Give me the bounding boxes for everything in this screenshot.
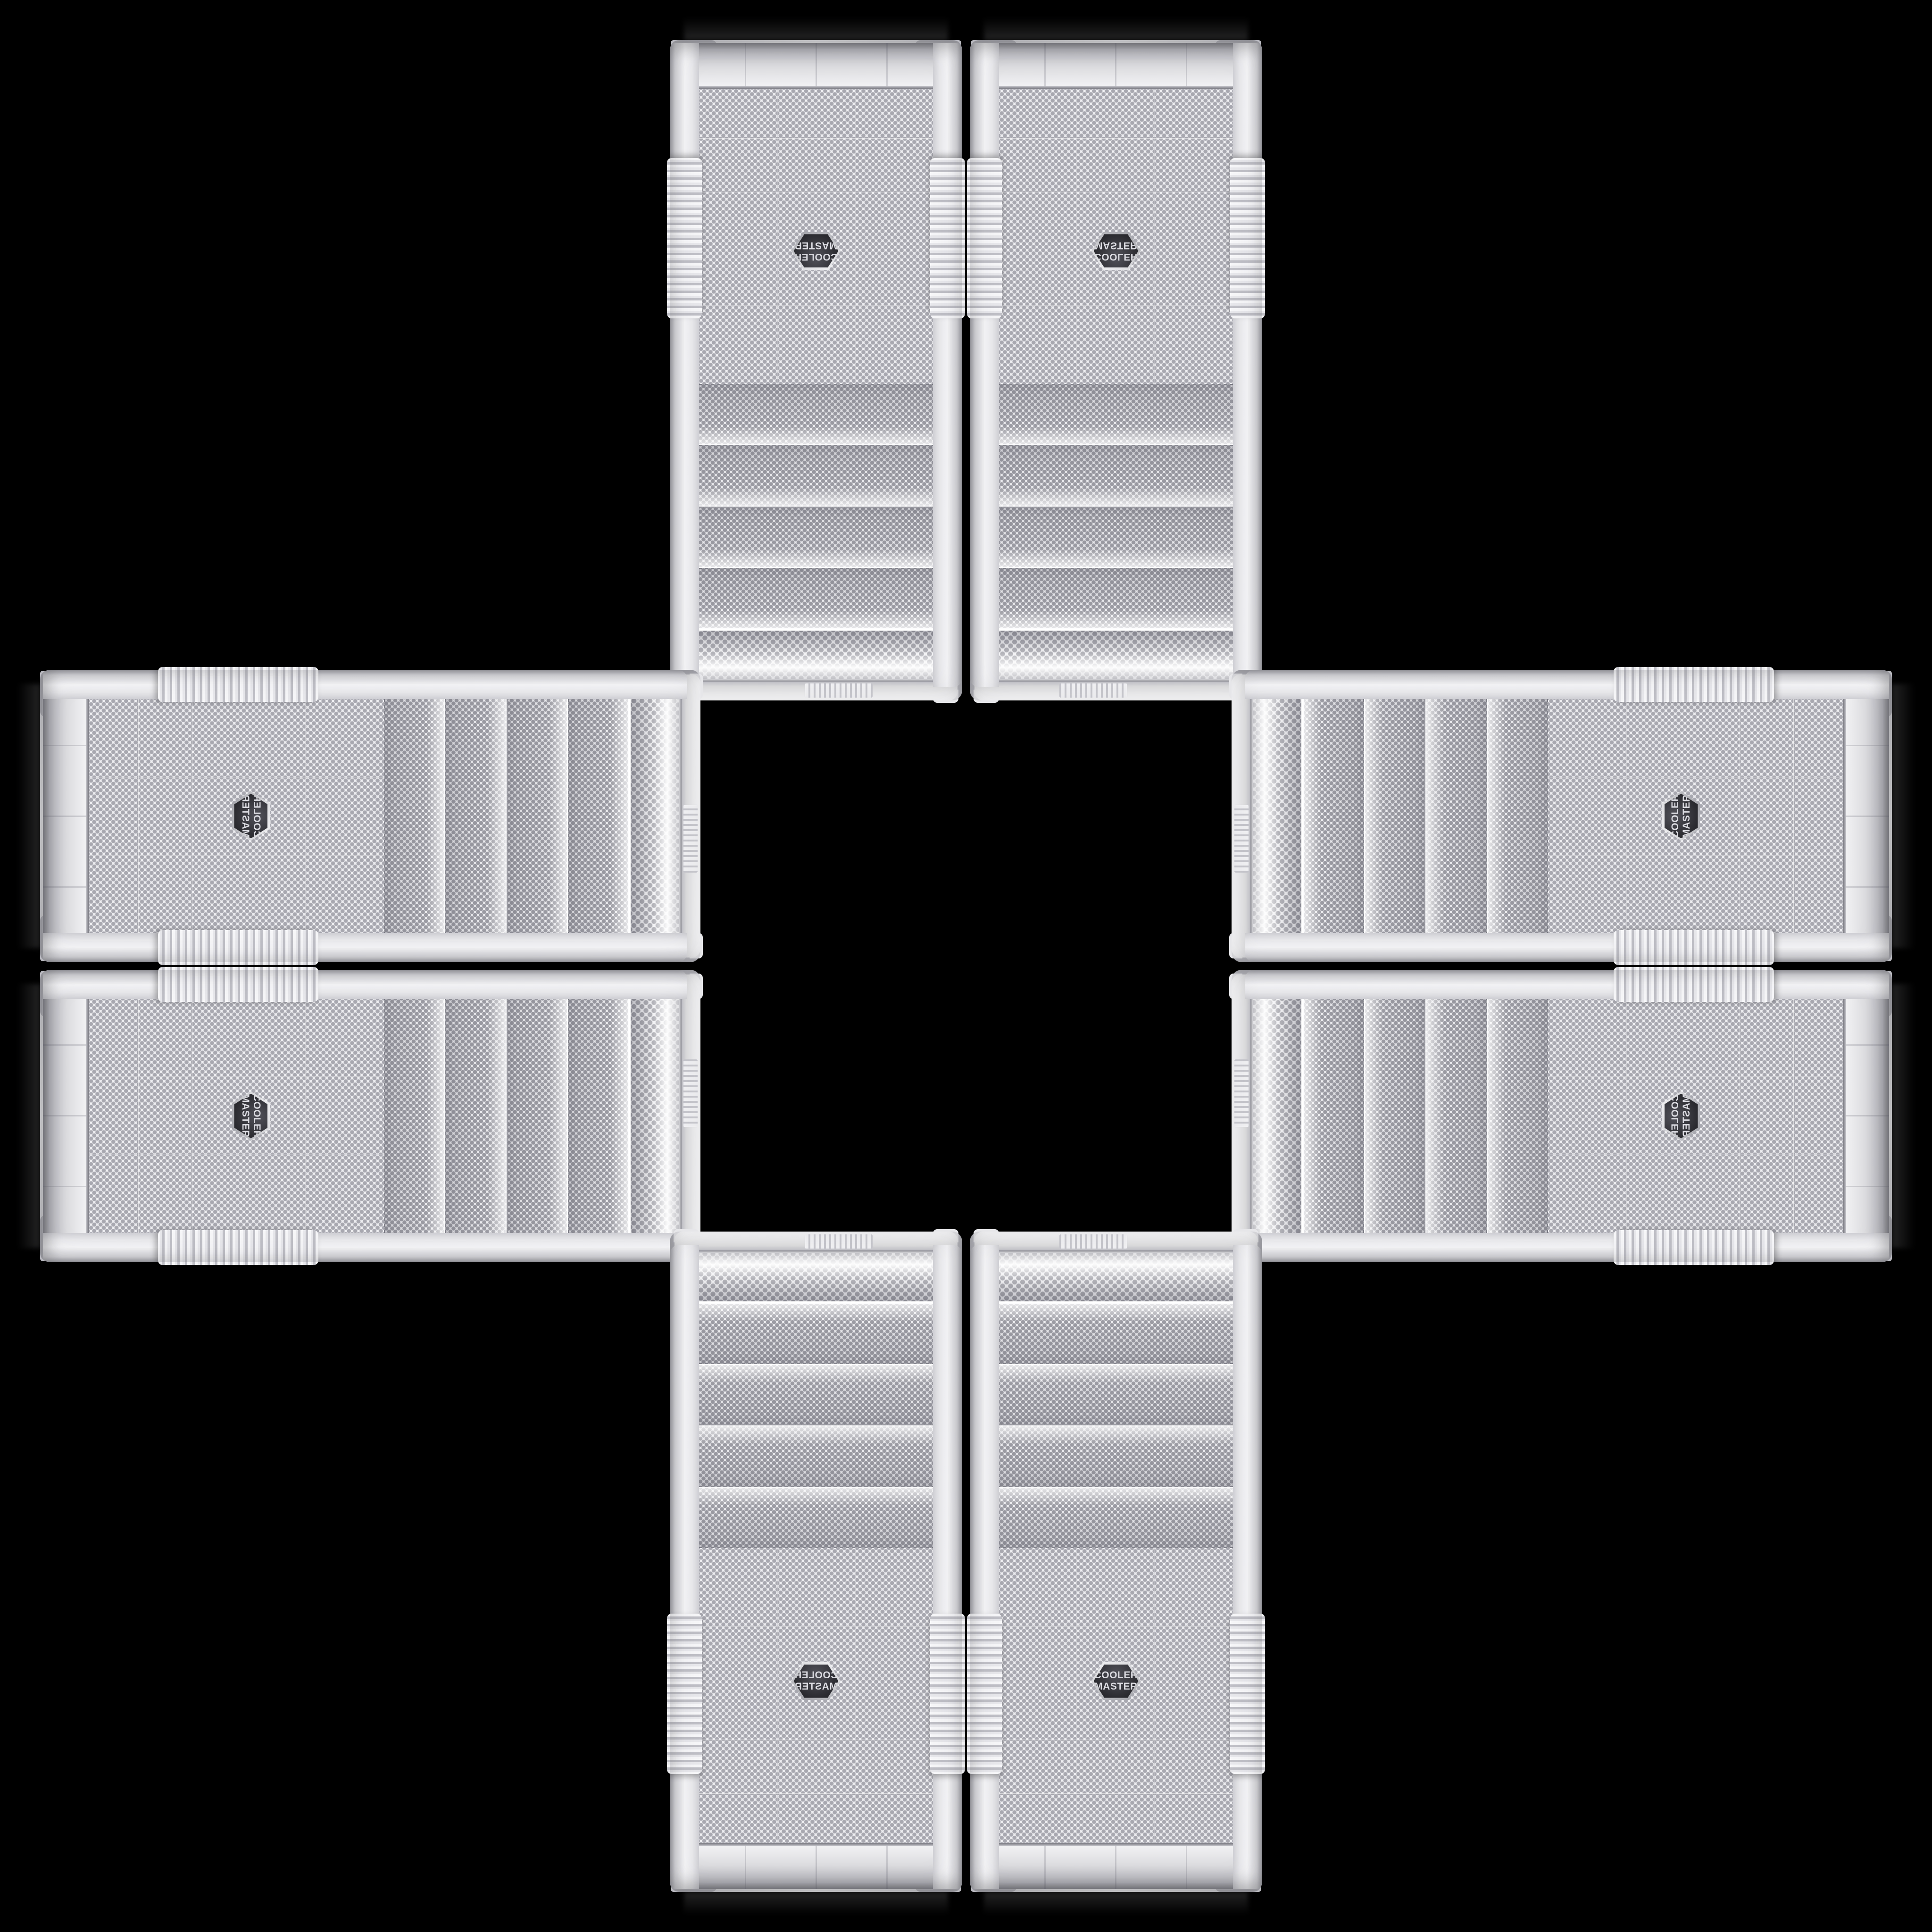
base-shadow-lip [1843,674,1846,958]
side-grip-ribs-right [1230,1614,1265,1774]
side-grip-ribs-right [1614,1230,1774,1265]
front-mesh-panel: COOLER MASTER [997,1242,1235,1847]
drive-bay-cover [446,999,507,1233]
top-vent-ribs [683,1059,698,1127]
drive-bay-cover [699,569,933,629]
top-bezel-cap [1232,675,1251,958]
side-rail-left [933,1245,962,1889]
mesh-seam [1154,85,1155,384]
mesh-seam [1076,1548,1077,1847]
side-rail-right [1233,43,1262,687]
cooler-master-logo-badge: COOLER MASTER [1662,1091,1700,1141]
base-shadow-lip [86,974,89,1258]
chrome-trim-top [1250,994,1253,1238]
mesh-seam [699,1626,933,1627]
front-mesh-panel: COOLER MASTER [85,697,690,935]
drive-bay-cover [1487,999,1547,1233]
drive-bay-cover [1487,699,1547,933]
chrome-trim-top [679,694,682,938]
drive-bay-covers [999,384,1233,629]
floor-reflection [1892,984,1922,1248]
mesh-seam [85,1076,384,1077]
top-vent-ribs [805,683,873,698]
drive-bay-cover [1303,999,1363,1233]
base-shadow-lip [86,674,89,958]
drive-bay-covers [384,999,629,1233]
pc-case-bottom-left: COOLER MASTER [670,1232,962,1892]
mesh-seam [855,85,856,384]
cooler-master-logo-badge: COOLER MASTER [791,1662,841,1700]
badge-text-line2: MASTER [240,794,251,838]
drive-bay-cover [508,699,568,933]
pc-case-top-right: COOLER MASTER [970,40,1262,700]
case-base [974,43,1258,86]
side-grip-ribs-left [930,158,965,318]
mesh-seam [191,999,192,1233]
drive-bay-cover [699,385,933,445]
pc-case-right-bottom: COOLER MASTER [1232,970,1892,1262]
mesh-seam [1548,1076,1847,1077]
drive-bay-cover [569,999,629,1233]
top-bezel-cap [675,1232,958,1251]
side-rail-left [1245,970,1889,999]
mesh-seam [1793,999,1795,1233]
badge-text-line1: COOLER [1670,1094,1681,1138]
floor-reflection [1892,684,1922,948]
side-rail-right [43,670,687,699]
mesh-seam [1548,855,1847,856]
top-vent-ribs [1234,1059,1249,1127]
top-vent-ribs [1059,1234,1127,1249]
top-bezel-cap [974,1232,1257,1251]
mesh-seam [1793,699,1795,933]
side-rail-left [43,933,687,962]
drive-bay-cover [1364,699,1424,933]
side-grip-ribs-left [158,930,318,965]
lower-mesh-intake: COOLER MASTER [1548,699,1847,933]
case-base [1846,974,1889,1258]
top-vent-ribs [805,1234,873,1249]
side-grip-ribs-right [1614,667,1774,702]
badge-text-line2: MASTER [1681,794,1692,838]
cooler-master-logo-icon: COOLER MASTER [234,794,268,839]
drive-bay-cover [699,508,933,568]
side-grip-ribs-right [158,667,318,702]
top-bezel-cap [675,681,958,700]
mesh-seam [1076,85,1077,384]
pc-case-top-left: COOLER MASTER [670,40,962,700]
mesh-seam [699,305,933,306]
drive-bay-covers [699,384,933,629]
drive-bay-cover [699,1425,933,1486]
case-base [674,1846,958,1889]
chrome-trim-top [694,1250,938,1253]
mesh-seam [1626,999,1627,1233]
badge-text-line1: COOLER [251,794,262,838]
lower-mesh-intake: COOLER MASTER [999,85,1233,384]
side-rail-right [43,1233,687,1262]
black-background-canvas: COOLER MASTER [0,0,1932,1932]
lower-mesh-intake: COOLER MASTER [699,1548,933,1847]
badge-text-line1: COOLER [794,251,838,262]
badge-text-line2: MASTER [1094,1681,1138,1692]
chrome-trim-top [994,1250,1238,1253]
mesh-seam [137,999,139,1233]
floor-reflection [984,10,1248,40]
lower-mesh-intake: COOLER MASTER [1548,999,1847,1233]
drive-bay-cover [999,1303,1233,1363]
side-grip-ribs-left [930,1614,965,1774]
cooler-master-logo-badge: COOLER MASTER [232,1091,270,1141]
cooler-master-logo-badge: COOLER MASTER [1091,1662,1141,1700]
lower-mesh-intake: COOLER MASTER [999,1548,1233,1847]
mesh-seam [305,999,306,1233]
floor-reflection [684,1892,948,1922]
mesh-seam [699,1740,933,1741]
mesh-seam [999,137,1233,139]
pc-case-left-top: COOLER MASTER [40,670,700,962]
top-vent-ribs [1234,805,1249,873]
cooler-master-logo-badge: COOLER MASTER [1662,791,1700,841]
cooler-master-logo-badge: COOLER MASTER [791,232,841,270]
drive-bay-cover [999,569,1233,629]
base-shadow-lip [674,1843,958,1846]
drive-bay-cover [508,999,568,1233]
floor-reflection [10,984,40,1248]
mesh-seam [1548,1154,1847,1155]
floor-reflection [984,1892,1248,1922]
drive-bay-cover [446,699,507,933]
side-grip-ribs-left [1614,967,1774,1002]
badge-text-line2: MASTER [794,1681,838,1692]
drive-bay-cover [569,699,629,933]
badge-text-line1: COOLER [1094,1670,1138,1681]
side-grip-ribs-left [967,158,1002,318]
chrome-trim-top [994,679,1238,682]
drive-bay-cover [1425,699,1486,933]
drive-bay-cover [999,1425,1233,1486]
lower-mesh-intake: COOLER MASTER [699,85,933,384]
top-bezel-cap [681,974,700,1257]
cooler-master-logo-badge: COOLER MASTER [232,791,270,841]
badge-text-line2: MASTER [1094,240,1138,251]
badge-text-line2: MASTER [240,1094,251,1138]
drive-bay-covers [384,699,629,933]
drive-bay-cover [699,1487,933,1547]
mesh-seam [137,699,139,933]
drive-bay-cover [385,999,445,1233]
side-rail-right [670,43,699,687]
cooler-master-logo-icon: COOLER MASTER [794,1665,839,1698]
mesh-seam [699,191,933,192]
case-base [43,674,86,958]
cooler-master-logo-icon: COOLER MASTER [1665,1094,1698,1139]
chrome-trim-top [679,994,682,1238]
front-mesh-panel: COOLER MASTER [697,85,935,690]
mesh-seam [1740,999,1741,1233]
mesh-seam [1626,699,1627,933]
side-grip-ribs-left [967,1614,1002,1774]
mesh-seam [999,305,1233,306]
chrome-trim-top [694,679,938,682]
lower-mesh-intake: COOLER MASTER [85,999,384,1233]
front-mesh-panel: COOLER MASTER [85,997,690,1235]
badge-text-line2: MASTER [1681,1094,1692,1138]
pc-case-bottom-right: COOLER MASTER [970,1232,1262,1892]
cooler-master-logo-icon: COOLER MASTER [1094,1665,1139,1698]
pc-case-right-top: COOLER MASTER [1232,670,1892,962]
mesh-seam [1154,1548,1155,1847]
side-rail-left [970,1245,999,1889]
base-shadow-lip [974,86,1258,89]
mesh-seam [1548,777,1847,778]
mesh-seam [85,1154,384,1155]
badge-text-line1: COOLER [251,1094,262,1138]
front-mesh-panel: COOLER MASTER [697,1242,935,1847]
mesh-seam [699,1793,933,1795]
top-bezel-cap [1232,974,1251,1257]
side-rail-right [1245,670,1889,699]
cooler-master-logo-icon: COOLER MASTER [1094,234,1139,268]
lower-mesh-intake: COOLER MASTER [85,699,384,933]
side-grip-ribs-right [667,1614,702,1774]
mesh-seam [999,1626,1233,1627]
case-base [974,1846,1258,1889]
drive-bay-covers [699,1303,933,1548]
mesh-seam [855,1548,856,1847]
side-grip-ribs-left [158,967,318,1002]
badge-text-line1: COOLER [794,1670,838,1681]
drive-bay-covers [1303,699,1548,933]
side-rail-left [43,970,687,999]
top-bezel-cap [681,675,700,958]
chrome-trim-top [1250,694,1253,938]
side-grip-ribs-left [1614,930,1774,965]
cooler-master-logo-icon: COOLER MASTER [794,234,839,268]
drive-bay-cover [1364,999,1424,1233]
top-vent-ribs [683,805,698,873]
badge-text-line1: COOLER [1094,251,1138,262]
base-shadow-lip [974,1843,1258,1846]
side-rail-right [1245,1233,1889,1262]
drive-bay-covers [999,1303,1233,1548]
mesh-seam [191,699,192,933]
front-mesh-panel: COOLER MASTER [1242,697,1847,935]
base-shadow-lip [674,86,958,89]
mesh-seam [1740,699,1741,933]
mesh-seam [777,1548,778,1847]
drive-bay-cover [999,1364,1233,1424]
mesh-seam [999,1793,1233,1795]
drive-bay-cover [699,1303,933,1363]
cooler-master-logo-icon: COOLER MASTER [1665,794,1698,839]
drive-bay-cover [699,446,933,507]
side-rail-right [670,1245,699,1889]
drive-bay-cover [1303,699,1363,933]
mesh-seam [699,137,933,139]
drive-bay-cover [999,385,1233,445]
front-mesh-panel: COOLER MASTER [997,85,1235,690]
side-grip-ribs-right [667,158,702,318]
case-base [43,974,86,1258]
drive-bay-cover [385,699,445,933]
side-rail-left [933,43,962,687]
case-base [674,43,958,86]
mesh-seam [999,1740,1233,1741]
badge-text-line2: MASTER [794,240,838,251]
side-rail-left [970,43,999,687]
side-grip-ribs-right [1230,158,1265,318]
floor-reflection [684,10,948,40]
case-base [1846,674,1889,958]
drive-bay-cover [999,1487,1233,1547]
top-vent-ribs [1059,683,1127,698]
mesh-seam [999,191,1233,192]
side-grip-ribs-right [158,1230,318,1265]
base-shadow-lip [1843,974,1846,1258]
pc-case-left-bottom: COOLER MASTER [40,970,700,1262]
drive-bay-cover [1425,999,1486,1233]
drive-bay-cover [999,508,1233,568]
front-mesh-panel: COOLER MASTER [1242,997,1847,1235]
badge-text-line1: COOLER [1670,794,1681,838]
mesh-seam [85,777,384,778]
drive-bay-cover [999,446,1233,507]
mesh-seam [305,699,306,933]
cooler-master-logo-badge: COOLER MASTER [1091,232,1141,270]
floor-reflection [10,684,40,948]
drive-bay-covers [1303,999,1548,1233]
mesh-seam [777,85,778,384]
mesh-seam [85,855,384,856]
drive-bay-cover [699,1364,933,1424]
side-rail-right [1233,1245,1262,1889]
top-bezel-cap [974,681,1257,700]
cooler-master-logo-icon: COOLER MASTER [234,1094,268,1139]
side-rail-left [1245,933,1889,962]
